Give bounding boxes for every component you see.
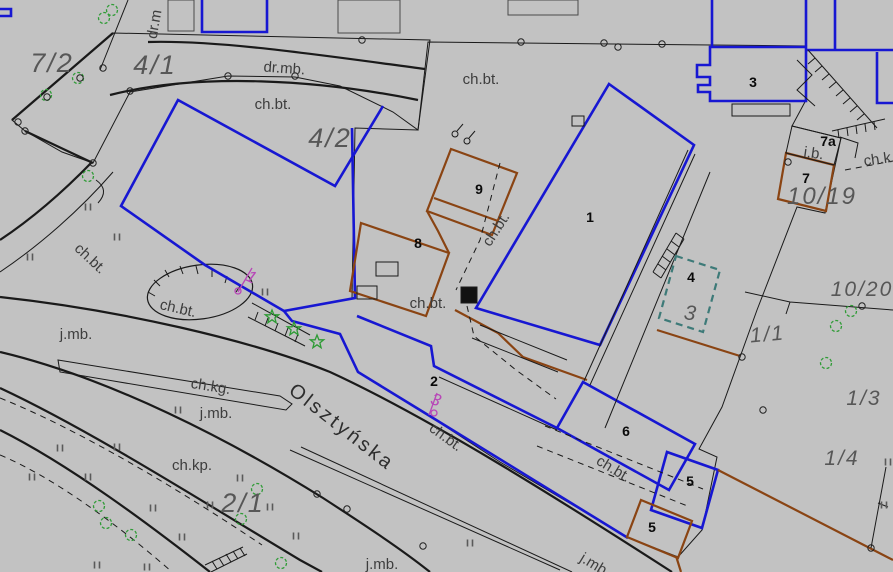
parcel-label: 4/1 (133, 50, 177, 80)
parcel-label: 7/2 (30, 48, 74, 78)
parcel-label: 1/3 (846, 387, 881, 410)
parcel-label: 1/4 (824, 447, 859, 470)
parcel-label: 1/1 (749, 322, 786, 348)
building-label: 5 (648, 519, 656, 535)
building-label: 2 (430, 373, 438, 389)
building-label: 4 (687, 269, 695, 285)
building-label: 8 (414, 235, 422, 251)
surface-label: ch.bt. (463, 71, 500, 88)
surface-label: i.b. (803, 144, 825, 164)
surface-label: j.mb. (365, 556, 399, 572)
surface-label: j.mb. (59, 326, 93, 343)
map-canvas[interactable]: 7/2 4/1 4/2 2/1 1/1 1/3 1/4 10/19 10/20 … (0, 0, 893, 572)
surface-label: j.mb. (199, 405, 233, 422)
parcel-label: 4/2 (308, 123, 352, 153)
building-label: 3 (749, 74, 757, 90)
surface-label: dr.mb. (263, 59, 306, 79)
filled-structure (461, 287, 477, 303)
parcel-label: 10/19 (787, 183, 857, 210)
parcel-label: 10/20 (831, 278, 893, 301)
surface-label: ch.bt. (255, 96, 292, 113)
building-label: 9 (475, 181, 483, 197)
parcel-label: 2/1 (220, 488, 265, 518)
building-label: 6 (622, 423, 630, 439)
building-label: 7 (802, 170, 810, 186)
building-label: 5 (686, 473, 694, 489)
surface-label: ch.kp. (172, 457, 212, 474)
building-label: 1 (586, 209, 594, 225)
map-background (0, 0, 893, 572)
surface-label: ch.bt. (410, 295, 447, 312)
survey-map: 7/2 4/1 4/2 2/1 1/1 1/3 1/4 10/19 10/20 … (0, 0, 893, 572)
